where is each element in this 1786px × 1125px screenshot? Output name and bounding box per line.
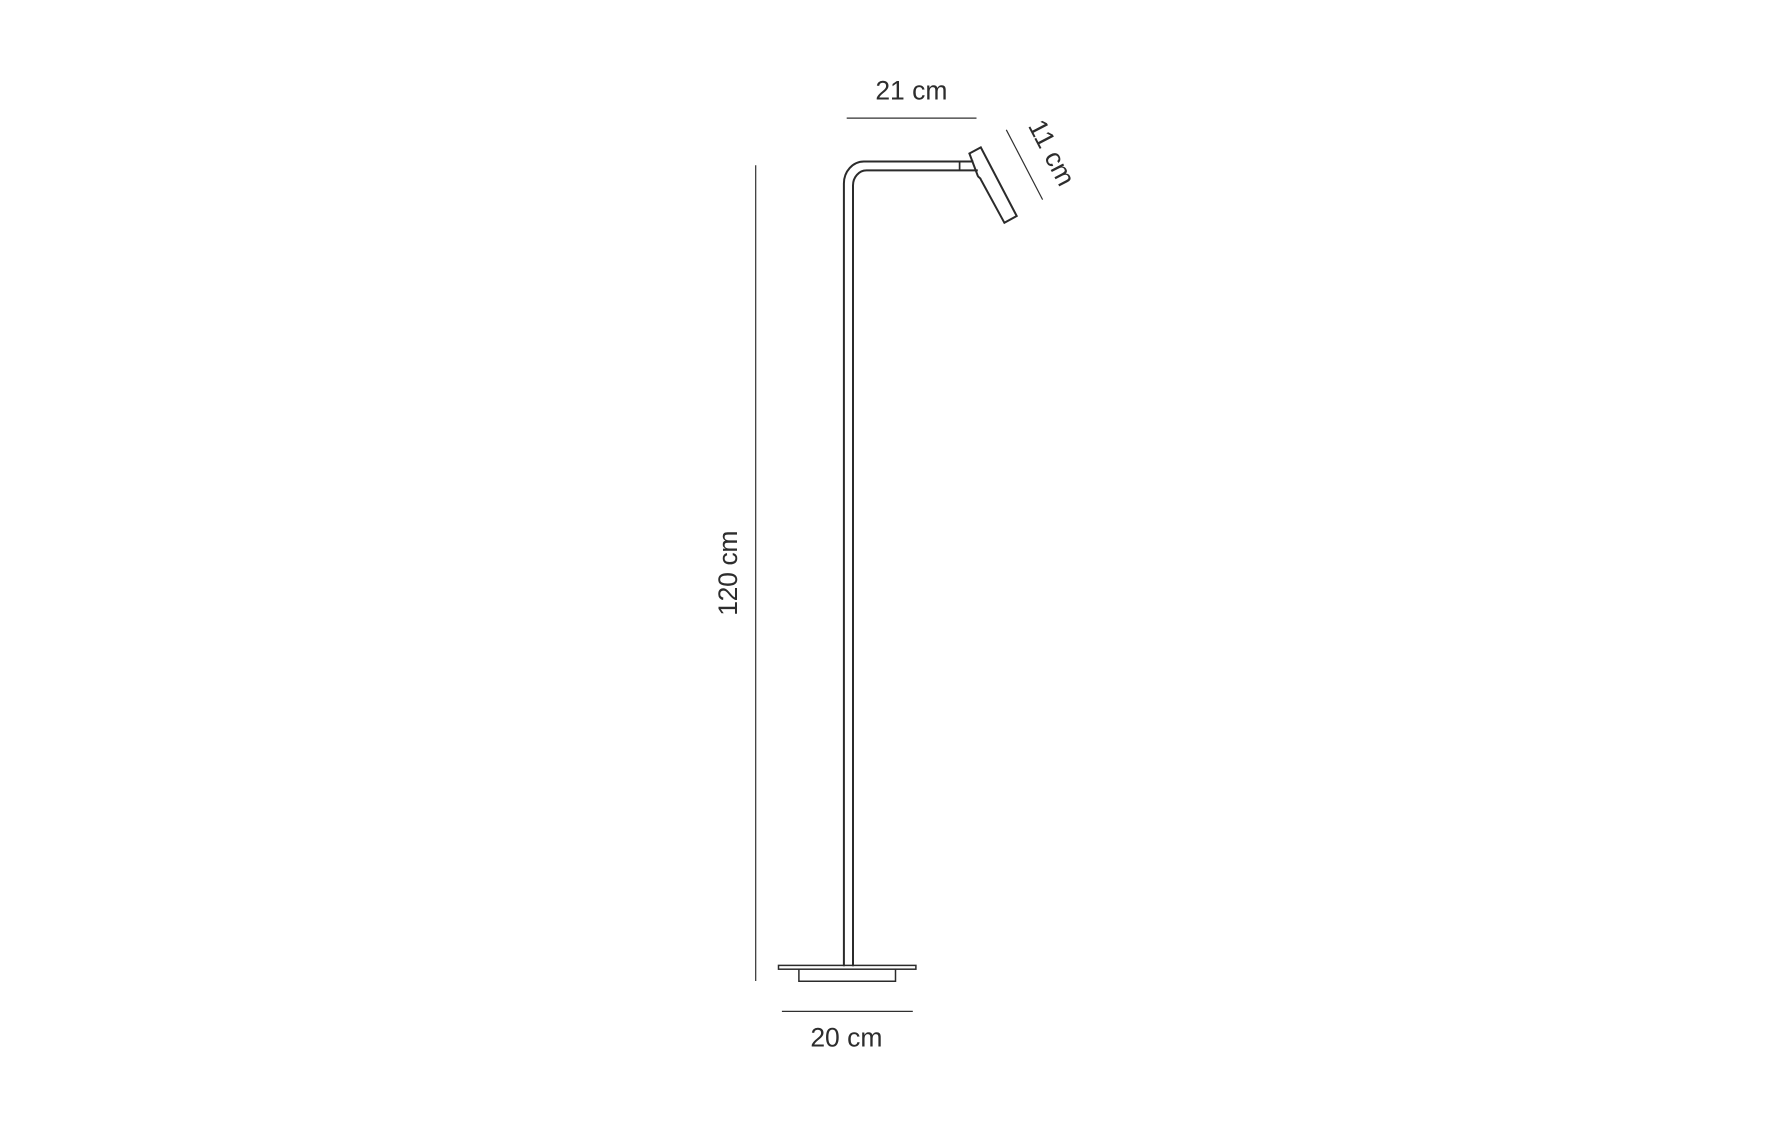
- svg-text:11 cm: 11 cm: [1022, 115, 1081, 191]
- svg-text:21 cm: 21 cm: [875, 76, 947, 106]
- svg-text:20 cm: 20 cm: [810, 1022, 882, 1052]
- svg-text:120 cm: 120 cm: [713, 531, 743, 616]
